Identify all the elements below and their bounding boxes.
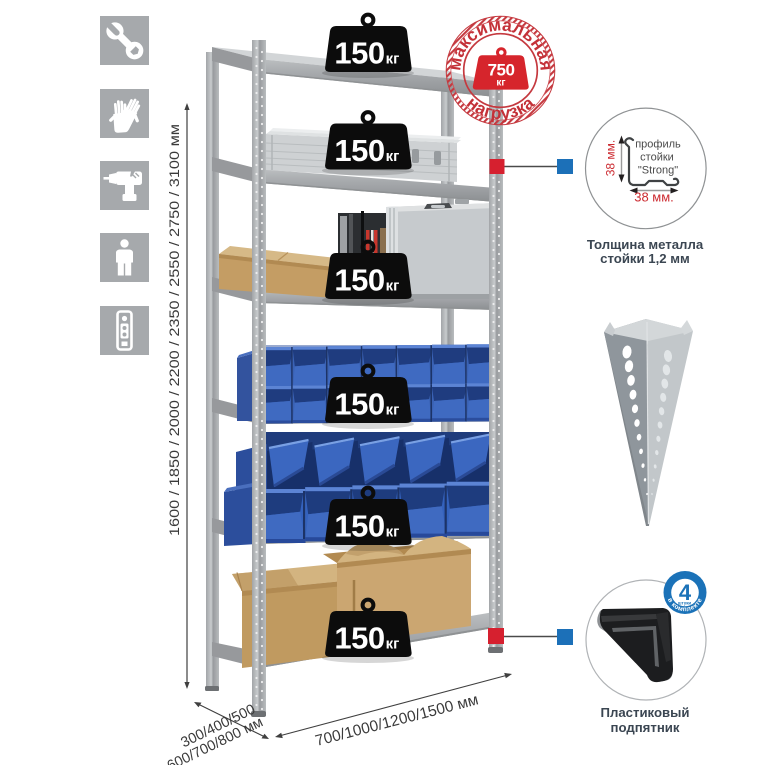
- svg-text:кг: кг: [386, 278, 400, 295]
- svg-text:38 мм.: 38 мм.: [634, 190, 674, 205]
- svg-text:кг: кг: [386, 51, 400, 68]
- svg-text:38 мм.: 38 мм.: [604, 140, 618, 177]
- svg-text:стойки: стойки: [640, 152, 674, 164]
- svg-text:150: 150: [334, 36, 384, 71]
- svg-text:150: 150: [334, 621, 384, 656]
- svg-text:150: 150: [334, 263, 384, 298]
- svg-text:стойки 1,2 мм: стойки 1,2 мм: [600, 251, 690, 266]
- svg-text:кг: кг: [386, 148, 400, 165]
- svg-text:кг: кг: [386, 402, 400, 419]
- svg-text:штуки: штуки: [678, 601, 692, 606]
- svg-text:Толщина металла: Толщина металла: [587, 237, 704, 252]
- svg-text:кг: кг: [386, 636, 400, 653]
- svg-text:"Strong": "Strong": [638, 165, 678, 177]
- svg-text:150: 150: [334, 509, 384, 544]
- svg-text:150: 150: [334, 133, 384, 168]
- svg-text:1600 / 1850 / 2000 / 2200 / 23: 1600 / 1850 / 2000 / 2200 / 2350 / 2550 …: [167, 124, 182, 536]
- svg-text:Пластиковый: Пластиковый: [600, 705, 689, 720]
- svg-text:кг: кг: [496, 78, 505, 89]
- svg-text:150: 150: [334, 387, 384, 422]
- svg-text:подпятник: подпятник: [610, 720, 679, 735]
- svg-text:профиль: профиль: [635, 139, 681, 151]
- svg-text:кг: кг: [386, 524, 400, 541]
